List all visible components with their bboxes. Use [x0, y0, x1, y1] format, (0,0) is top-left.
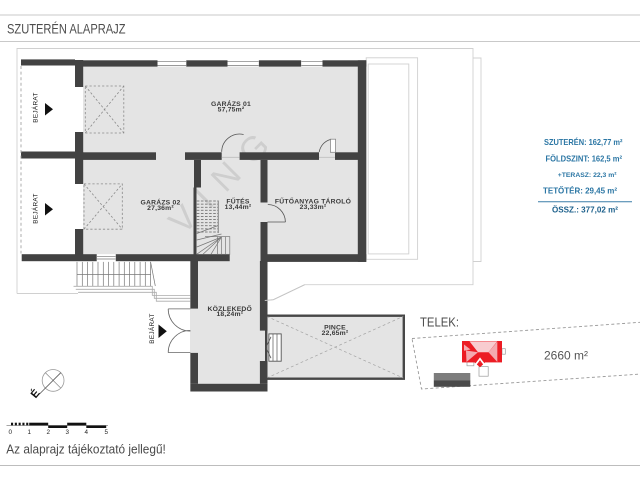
- svg-text:SZUTERÉN ALAPRAJZ: SZUTERÉN ALAPRAJZ: [7, 22, 126, 37]
- svg-text:SZUTERÉN: 162,77 m²: SZUTERÉN: 162,77 m²: [544, 137, 623, 147]
- svg-text:ÖSSZ.: 377,02 m²: ÖSSZ.: 377,02 m²: [552, 205, 618, 215]
- svg-text:27,36m²: 27,36m²: [147, 205, 174, 212]
- svg-text:BEJÁRAT: BEJÁRAT: [31, 193, 40, 223]
- svg-text:23,33m²: 23,33m²: [300, 204, 327, 211]
- svg-text:22,65m²: 22,65m²: [322, 330, 349, 337]
- svg-text:TETŐTÉR: 29,45 m²: TETŐTÉR: 29,45 m²: [543, 185, 617, 196]
- svg-text:BEJÁRAT: BEJÁRAT: [147, 313, 156, 343]
- svg-text:Az alaprajz tájékoztató jelleg: Az alaprajz tájékoztató jellegű!: [6, 441, 166, 456]
- svg-text:1: 1: [27, 429, 31, 436]
- svg-text:13,44m²: 13,44m²: [225, 204, 252, 211]
- svg-text:+TERASZ: 22,3 m²: +TERASZ: 22,3 m²: [558, 172, 617, 179]
- svg-text:2660 m²: 2660 m²: [544, 349, 588, 363]
- svg-text:3: 3: [65, 429, 69, 436]
- svg-text:2: 2: [46, 429, 50, 436]
- svg-text:0: 0: [8, 429, 12, 436]
- svg-text:FÖLDSZINT: 162,5 m²: FÖLDSZINT: 162,5 m²: [546, 154, 623, 164]
- svg-text:TELEK:: TELEK:: [420, 316, 459, 330]
- svg-text:18,24m²: 18,24m²: [216, 311, 243, 318]
- svg-text:4: 4: [85, 429, 89, 436]
- svg-text:57,75m²: 57,75m²: [218, 107, 245, 114]
- svg-text:5: 5: [104, 429, 108, 436]
- svg-text:BEJÁRAT: BEJÁRAT: [31, 92, 40, 122]
